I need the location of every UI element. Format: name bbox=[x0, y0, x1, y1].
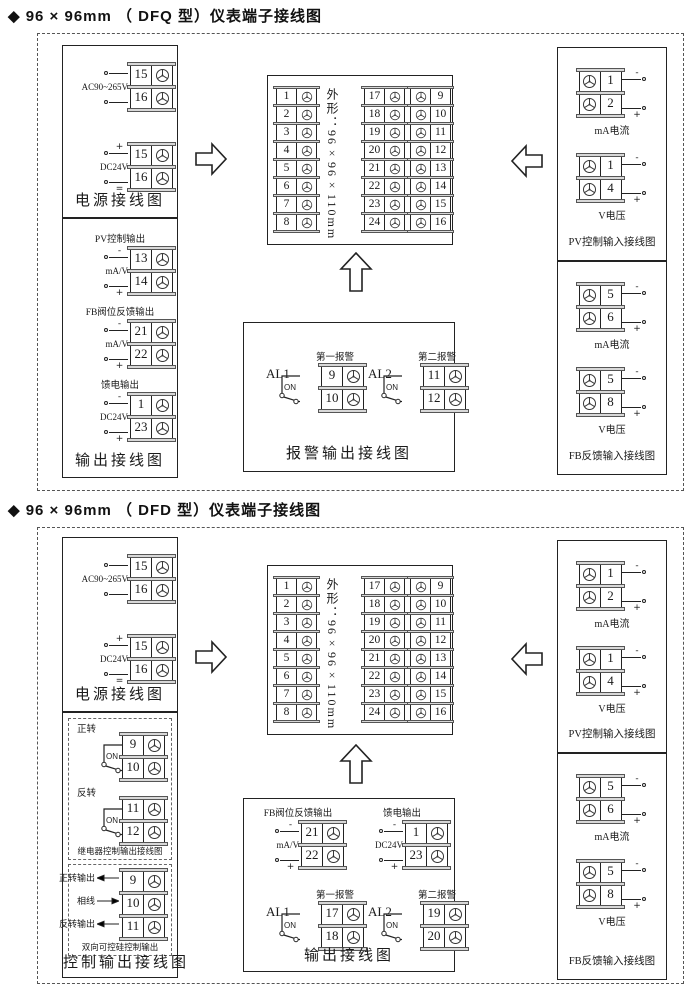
wire-end-dot bbox=[104, 284, 108, 288]
wire-end-dot bbox=[379, 858, 383, 862]
screw-icon bbox=[411, 579, 431, 594]
terminal-cap bbox=[298, 866, 347, 870]
terminal-number: 10 bbox=[322, 390, 343, 409]
terminal-number: 21 bbox=[302, 824, 323, 843]
terminal-number: 10 bbox=[123, 759, 144, 778]
wire-line bbox=[622, 899, 641, 900]
scr-label-row: 正转输出 bbox=[59, 871, 119, 884]
panel-title: PV控制输入接线图 bbox=[558, 234, 666, 249]
wire-column: -+ bbox=[622, 775, 646, 824]
wire-line bbox=[280, 860, 299, 861]
terminal-row: 3 bbox=[276, 615, 317, 630]
screw-icon bbox=[385, 579, 404, 594]
group-label: mA电流 bbox=[595, 828, 630, 843]
screw-icon bbox=[297, 107, 316, 122]
screw-icon bbox=[152, 66, 172, 85]
screw-icon bbox=[580, 863, 601, 882]
terminal-cap bbox=[576, 114, 625, 118]
screw-icon bbox=[297, 125, 316, 140]
power-panel: AC90~265V1516+DC24V=1516电源接线图 bbox=[62, 45, 178, 218]
wire-end-dot bbox=[642, 106, 646, 110]
terminal-cap bbox=[361, 720, 408, 723]
terminal-number: 19 bbox=[424, 905, 445, 924]
wire-column: +DC24V= bbox=[100, 635, 128, 684]
group-label: V电压 bbox=[598, 207, 625, 222]
screw-icon bbox=[411, 125, 431, 140]
block-arrow-up-icon bbox=[339, 744, 373, 784]
screw-icon bbox=[297, 179, 316, 194]
panel-title: 控制输出接线图 bbox=[63, 951, 177, 972]
terminal-number: 12 bbox=[424, 390, 445, 409]
group-label: V电压 bbox=[598, 700, 625, 715]
terminal-block: 2122 bbox=[130, 319, 173, 369]
terminal-cap bbox=[119, 778, 168, 782]
section-dfq: ◆ 96 × 96mm （ DFQ 型）仪表端子接线图 AC90~265V151… bbox=[0, 0, 700, 494]
terminal-block: 1314 bbox=[130, 246, 173, 296]
terminal-number: 19 bbox=[365, 615, 385, 630]
wire-column: -+ bbox=[622, 860, 646, 909]
screw-icon bbox=[297, 197, 316, 212]
terminal-number: 23 bbox=[365, 197, 385, 212]
terminal-block: 12345678 bbox=[276, 576, 317, 723]
terminal-row: 18 bbox=[364, 107, 405, 122]
terminal-number: 16 bbox=[131, 581, 152, 600]
polarity-sign: - bbox=[629, 775, 646, 783]
terminal-row: 16 bbox=[130, 581, 173, 600]
wire-end-dot bbox=[104, 357, 108, 361]
wire-end-dot bbox=[379, 829, 383, 833]
group-label: mA电流 bbox=[595, 615, 630, 630]
terminal-row: 2 bbox=[276, 597, 317, 612]
terminal-number: 13 bbox=[431, 161, 450, 176]
terminal-number: 8 bbox=[277, 215, 297, 230]
wire-column: -DC24V+ bbox=[375, 821, 403, 870]
wire-stub: + bbox=[104, 637, 128, 653]
terminal-number: 3 bbox=[277, 125, 297, 140]
screw-icon bbox=[385, 633, 404, 648]
screw-icon bbox=[411, 669, 431, 684]
terminal-number: 11 bbox=[123, 800, 144, 819]
screw-icon bbox=[385, 687, 404, 702]
screw-icon bbox=[152, 89, 172, 108]
terminal-row: 22 bbox=[364, 669, 405, 684]
wire-stub: + bbox=[622, 891, 646, 907]
wire-end-dot bbox=[642, 684, 646, 688]
wire-stub: - bbox=[622, 156, 646, 172]
polarity-sign: + bbox=[111, 362, 128, 370]
wire-line bbox=[109, 594, 128, 595]
terminal-board: 123456781718192021222324910111213141516外… bbox=[267, 565, 453, 735]
wire-stub: + bbox=[104, 145, 128, 161]
alarm-heading: 第二报警 bbox=[404, 887, 470, 901]
wire-column: AC90~265V bbox=[82, 63, 128, 112]
screw-icon bbox=[580, 157, 601, 176]
terminal-row: 5 bbox=[579, 371, 622, 390]
group-label: AC90~265V bbox=[82, 574, 128, 584]
screw-icon bbox=[580, 588, 601, 607]
screw-icon bbox=[385, 143, 404, 158]
screw-icon bbox=[343, 390, 363, 409]
wire-stub: - bbox=[622, 777, 646, 793]
wire-stub: - bbox=[622, 285, 646, 301]
screw-icon bbox=[411, 107, 431, 122]
polarity-sign: + bbox=[111, 143, 128, 151]
wire-stub: + bbox=[275, 852, 299, 868]
terminal-group: -mA/V+2122 bbox=[63, 319, 177, 369]
terminal-row: 11 bbox=[410, 615, 451, 630]
screw-icon bbox=[411, 597, 431, 612]
screw-icon bbox=[427, 824, 447, 843]
power-panel: AC90~265V1516+DC24V=1516电源接线图 bbox=[62, 537, 178, 712]
group-label: mA/V bbox=[106, 339, 129, 349]
screw-icon bbox=[427, 847, 447, 866]
terminal-cap bbox=[407, 230, 454, 233]
terminal-cap bbox=[318, 409, 367, 413]
group-label: DC24V bbox=[100, 412, 128, 422]
terminal-number: 18 bbox=[365, 107, 385, 122]
terminal-row: 11 bbox=[410, 125, 451, 140]
terminal-row: 9 bbox=[122, 736, 165, 755]
wire-end-dot bbox=[642, 868, 646, 872]
screw-icon bbox=[152, 169, 172, 188]
terminal-row: 19 bbox=[364, 615, 405, 630]
wire-line bbox=[622, 293, 641, 294]
wire-end-dot bbox=[642, 405, 646, 409]
wire-end-dot bbox=[642, 191, 646, 195]
group-heading: 馈电输出 bbox=[352, 805, 452, 819]
wire-stub bbox=[104, 94, 128, 110]
terminal-row: 11 bbox=[122, 800, 165, 819]
screw-icon bbox=[343, 905, 363, 924]
screw-icon bbox=[297, 579, 316, 594]
wire-line bbox=[622, 322, 641, 323]
wire-stub: - bbox=[622, 71, 646, 87]
screw-icon bbox=[385, 597, 404, 612]
terminal-number: 4 bbox=[277, 633, 297, 648]
polarity-sign: + bbox=[111, 289, 128, 297]
terminal-number: 16 bbox=[431, 215, 450, 230]
terminal-block: 910 bbox=[122, 732, 165, 782]
terminal-block: 1718192021222324 bbox=[364, 86, 405, 233]
terminal-number: 1 bbox=[277, 579, 297, 594]
terminal-board: 123456781718192021222324910111213141516外… bbox=[267, 75, 453, 245]
terminal-group: -DC24V+123 bbox=[352, 820, 452, 870]
wire-stub bbox=[104, 557, 128, 573]
wire-end-dot bbox=[642, 376, 646, 380]
terminal-number: 1 bbox=[601, 650, 621, 669]
wire-stub: - bbox=[275, 823, 299, 839]
wire-column: -mA/V+ bbox=[275, 821, 299, 870]
wire-stub: - bbox=[379, 823, 403, 839]
relay-box-caption: 继电器控制输出接线图 bbox=[69, 845, 171, 857]
screw-icon bbox=[580, 565, 601, 584]
wire-end-dot bbox=[275, 829, 279, 833]
screw-icon bbox=[385, 215, 404, 230]
terminal-row: 1 bbox=[276, 89, 317, 104]
alarm-heading: 第一报警 bbox=[302, 887, 368, 901]
screw-icon bbox=[152, 146, 172, 165]
terminal-number: 6 bbox=[277, 179, 297, 194]
input-panel: 12-+mA电流14-+V电压PV控制输入接线图 bbox=[557, 47, 667, 261]
wire-stub: + bbox=[104, 351, 128, 367]
polarity-sign: - bbox=[629, 283, 646, 291]
terminal-row: 14 bbox=[410, 669, 451, 684]
terminal-number: 23 bbox=[131, 419, 152, 438]
screw-icon bbox=[580, 72, 601, 91]
terminal-row: 15 bbox=[130, 66, 173, 85]
screw-icon bbox=[152, 638, 172, 657]
polarity-sign: - bbox=[629, 69, 646, 77]
wire-stub: - bbox=[622, 862, 646, 878]
terminal-row: 9 bbox=[410, 579, 451, 594]
terminal-row: 16 bbox=[410, 215, 451, 230]
wire-stub: + bbox=[622, 399, 646, 415]
section-title: ◆ 96 × 96mm （ DFQ 型）仪表端子接线图 bbox=[8, 5, 322, 26]
scr-label: 正转输出 bbox=[59, 871, 95, 884]
terminal-number: 9 bbox=[431, 89, 450, 104]
terminal-row: 23 bbox=[405, 847, 448, 866]
group-label: mA电流 bbox=[595, 336, 630, 351]
terminal-block: 1516 bbox=[130, 62, 173, 112]
group-label: DC24V bbox=[100, 654, 128, 664]
on-switch-icon: ON bbox=[270, 903, 300, 947]
arrow-left-icon bbox=[97, 874, 119, 882]
terminal-cap bbox=[127, 600, 176, 604]
wire-column: -+ bbox=[622, 562, 646, 611]
screw-icon bbox=[152, 346, 172, 365]
terminal-number: 12 bbox=[123, 823, 144, 842]
terminal-row: 10 bbox=[410, 107, 451, 122]
screw-icon bbox=[297, 215, 316, 230]
screw-icon bbox=[297, 651, 316, 666]
terminal-row: 9 bbox=[122, 872, 165, 891]
wire-stub: + bbox=[622, 806, 646, 822]
screw-icon bbox=[411, 215, 431, 230]
terminal-block: 1112 bbox=[423, 363, 466, 413]
section-title: ◆ 96 × 96mm （ DFD 型）仪表端子接线图 bbox=[8, 499, 321, 520]
wire-column: +DC24V= bbox=[100, 143, 128, 192]
terminal-row: 15 bbox=[130, 146, 173, 165]
screw-icon bbox=[411, 179, 431, 194]
terminal-number: 2 bbox=[601, 95, 621, 114]
wire-line bbox=[622, 870, 641, 871]
shape-dimension-label: 外形：96×96×110mm bbox=[324, 88, 341, 234]
terminal-number: 16 bbox=[131, 89, 152, 108]
on-switch-icon: ON bbox=[270, 365, 300, 409]
screw-icon bbox=[323, 847, 343, 866]
screw-icon bbox=[580, 673, 601, 692]
terminal-row: 15 bbox=[130, 558, 173, 577]
terminal-number: 24 bbox=[365, 215, 385, 230]
terminal-row: 13 bbox=[410, 651, 451, 666]
wire-stub: - bbox=[622, 370, 646, 386]
terminal-block: 1112 bbox=[122, 796, 165, 846]
terminal-row: 10 bbox=[321, 390, 364, 409]
terminal-group: 14-+V电压 bbox=[579, 153, 646, 222]
screw-icon bbox=[152, 558, 172, 577]
scr-output-box: 91011正转输出相线反转输出双向可控硅控制输出 bbox=[68, 864, 172, 956]
terminal-row: 12 bbox=[410, 633, 451, 648]
terminal-group: 12-+mA电流 bbox=[579, 561, 646, 630]
terminal-block: 58 bbox=[579, 367, 622, 417]
terminal-row: 2 bbox=[579, 95, 622, 114]
terminal-group: -mA/V+1314 bbox=[63, 246, 177, 296]
wire-line bbox=[622, 79, 641, 80]
wire-column: -+ bbox=[622, 283, 646, 332]
screw-icon bbox=[343, 367, 363, 386]
wire-line bbox=[622, 601, 641, 602]
block-arrow-left-icon bbox=[511, 144, 543, 178]
terminal-row: 22 bbox=[130, 346, 173, 365]
polarity-sign: + bbox=[629, 325, 646, 333]
terminal-number: 15 bbox=[131, 638, 152, 657]
group-heading: FB阀位反馈输出 bbox=[248, 805, 348, 819]
screw-icon bbox=[445, 390, 465, 409]
wire-end-dot bbox=[104, 401, 108, 405]
wire-column: -mA/V+ bbox=[104, 247, 128, 296]
wire-column: -DC24V+ bbox=[100, 393, 128, 442]
terminal-row: 22 bbox=[364, 179, 405, 194]
panel-title: FB反馈输入接线图 bbox=[558, 448, 666, 463]
terminal-number: 6 bbox=[277, 669, 297, 684]
terminal-row: 4 bbox=[579, 673, 622, 692]
terminal-row: 10 bbox=[122, 895, 165, 914]
terminal-row: 12 bbox=[410, 143, 451, 158]
wire-end-dot bbox=[104, 672, 108, 676]
terminal-number: 16 bbox=[131, 661, 152, 680]
wire-stub: = bbox=[104, 666, 128, 682]
terminal-number: 10 bbox=[431, 107, 450, 122]
wire-end-dot bbox=[642, 599, 646, 603]
polarity-sign: - bbox=[629, 368, 646, 376]
terminal-number: 11 bbox=[431, 125, 450, 140]
wire-line bbox=[109, 565, 128, 566]
shape-dimension-label: 外形：96×96×110mm bbox=[324, 578, 341, 724]
terminal-row: 21 bbox=[364, 651, 405, 666]
terminal-cap bbox=[273, 720, 320, 723]
group-label: V电压 bbox=[598, 421, 625, 436]
terminal-row: 5 bbox=[276, 161, 317, 176]
wire-end-dot bbox=[275, 858, 279, 862]
terminal-cap bbox=[420, 409, 469, 413]
terminal-number: 8 bbox=[601, 886, 621, 905]
terminal-number: 22 bbox=[365, 179, 385, 194]
wire-end-dot bbox=[104, 643, 108, 647]
wire-stub: - bbox=[622, 649, 646, 665]
terminal-group: AC90~265V1516 bbox=[63, 554, 177, 604]
wire-line bbox=[384, 831, 403, 832]
polarity-sign: - bbox=[386, 821, 403, 829]
terminal-row: 21 bbox=[130, 323, 173, 342]
polarity-sign: + bbox=[629, 817, 646, 825]
terminal-row: 12 bbox=[122, 823, 165, 842]
terminal-group: -mA/V+2122 bbox=[248, 820, 348, 870]
terminal-block: 1718192021222324 bbox=[364, 576, 405, 723]
terminal-number: 15 bbox=[431, 687, 450, 702]
screw-icon bbox=[580, 394, 601, 413]
terminal-number: 13 bbox=[431, 651, 450, 666]
screw-icon bbox=[385, 705, 404, 720]
terminal-row: 18 bbox=[364, 597, 405, 612]
terminal-number: 6 bbox=[601, 801, 621, 820]
terminal-cap bbox=[576, 692, 625, 696]
terminal-row: 15 bbox=[130, 638, 173, 657]
wire-line bbox=[109, 645, 128, 646]
group-heading: FB阀位反馈输出 bbox=[63, 304, 177, 318]
terminal-number: 16 bbox=[431, 705, 450, 720]
terminal-row-wrap: 14-+ bbox=[579, 646, 646, 696]
wire-column: -+ bbox=[622, 647, 646, 696]
terminal-row: 16 bbox=[130, 169, 173, 188]
screw-icon bbox=[152, 581, 172, 600]
terminal-block: 14 bbox=[579, 646, 622, 696]
terminal-number: 24 bbox=[365, 705, 385, 720]
polarity-sign: + bbox=[111, 635, 128, 643]
screw-icon bbox=[152, 419, 172, 438]
terminal-row: 1 bbox=[405, 824, 448, 843]
wire-end-dot bbox=[104, 255, 108, 259]
terminal-block: 1516 bbox=[130, 634, 173, 684]
terminal-number: 21 bbox=[131, 323, 152, 342]
terminal-row: 4 bbox=[276, 633, 317, 648]
input-panel: 56-+mA电流58-+V电压FB反馈输入接线图 bbox=[557, 261, 667, 475]
screw-icon bbox=[152, 661, 172, 680]
terminal-group: 58-+V电压 bbox=[579, 367, 646, 436]
terminal-group: 58-+V电压 bbox=[579, 859, 646, 928]
terminal-number: 9 bbox=[123, 736, 144, 755]
wire-line bbox=[280, 831, 299, 832]
terminal-number: 2 bbox=[601, 588, 621, 607]
alarm-heading: 第一报警 bbox=[302, 349, 368, 363]
screw-icon bbox=[144, 918, 164, 937]
polarity-sign: + bbox=[629, 196, 646, 204]
wire-line bbox=[622, 785, 641, 786]
terminal-row: 6 bbox=[276, 179, 317, 194]
terminal-row: 5 bbox=[579, 778, 622, 797]
screw-icon bbox=[445, 367, 465, 386]
svg-text:ON: ON bbox=[284, 383, 296, 392]
terminal-number: 1 bbox=[601, 565, 621, 584]
wire-stub: - bbox=[622, 564, 646, 580]
terminal-row: 11 bbox=[423, 367, 466, 386]
panel-title: PV控制输入接线图 bbox=[558, 726, 666, 741]
terminal-block: 1516 bbox=[130, 554, 173, 604]
screw-icon bbox=[385, 179, 404, 194]
terminal-row: 1 bbox=[579, 72, 622, 91]
terminal-number: 15 bbox=[431, 197, 450, 212]
on-switch-icon: ON bbox=[92, 734, 122, 778]
terminal-cap bbox=[576, 820, 625, 824]
polarity-sign: + bbox=[629, 604, 646, 612]
wire-end-dot bbox=[104, 180, 108, 184]
wire-line bbox=[109, 102, 128, 103]
terminal-cap bbox=[576, 607, 625, 611]
terminal-row: 4 bbox=[276, 143, 317, 158]
terminal-row: 23 bbox=[364, 197, 405, 212]
terminal-number: 22 bbox=[302, 847, 323, 866]
terminal-group: -DC24V+123 bbox=[63, 392, 177, 442]
terminal-row: 22 bbox=[301, 847, 344, 866]
terminal-row: 10 bbox=[122, 759, 165, 778]
polarity-sign: + bbox=[111, 435, 128, 443]
screw-icon bbox=[144, 800, 164, 819]
group-label: mA/V bbox=[277, 840, 300, 850]
terminal-row: 5 bbox=[579, 286, 622, 305]
group-label: mA/V bbox=[106, 266, 129, 276]
terminal-cap bbox=[407, 720, 454, 723]
screw-icon bbox=[152, 250, 172, 269]
terminal-number: 23 bbox=[365, 687, 385, 702]
